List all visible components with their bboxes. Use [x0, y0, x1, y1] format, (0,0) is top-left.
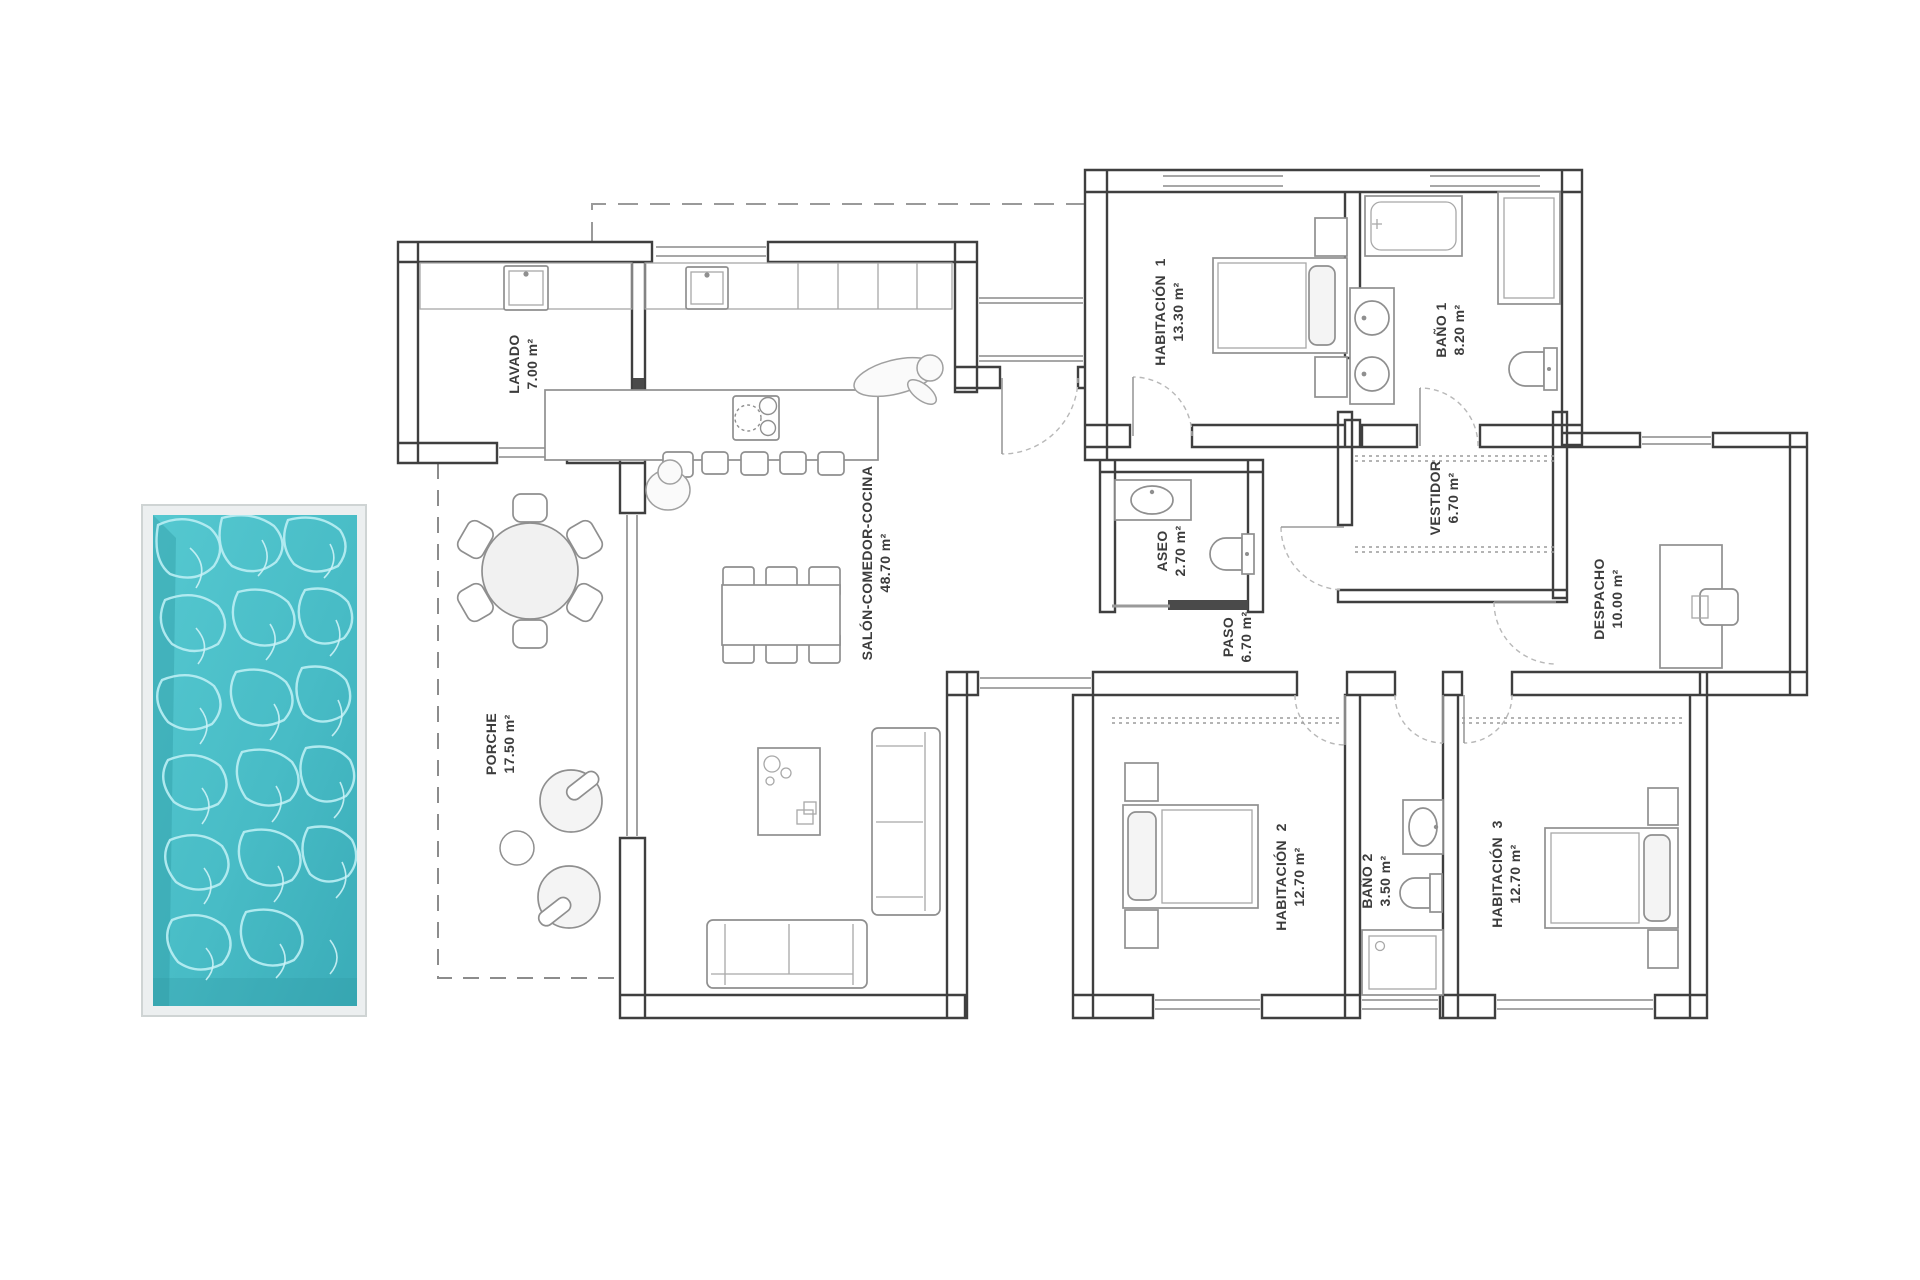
room-name: PASO	[1220, 617, 1236, 657]
room-name: BAÑO 1	[1432, 302, 1449, 357]
sink-bowl-1	[1355, 301, 1389, 335]
bed-3-pillow	[1644, 835, 1670, 921]
bedroom2-furniture	[1123, 763, 1258, 948]
bedroom2-door-arc	[1295, 695, 1345, 745]
bedroom1-furniture	[1213, 218, 1347, 397]
porch-furniture	[455, 494, 605, 929]
kitchen-faucet	[704, 272, 709, 277]
room-name: PORCHE	[483, 713, 499, 775]
bed-1-nightstand-top	[1315, 218, 1347, 256]
room-label-porche: PORCHE17.50 m²	[483, 713, 517, 775]
shower-tray	[1362, 930, 1443, 995]
living-dining-furniture	[707, 567, 940, 988]
kitchen-island	[545, 390, 878, 460]
outdoor-round-table	[482, 523, 578, 619]
entry-door-arc	[1002, 378, 1078, 454]
room-area: 6.70 m²	[1238, 611, 1254, 662]
svg-text:SALÓN-COMEDOR-COCINA48.70 m²: SALÓN-COMEDOR-COCINA48.70 m²	[858, 466, 893, 661]
svg-text:ASEO2.70 m²: ASEO2.70 m²	[1154, 525, 1188, 576]
room-label-despacho: DESPACHO10.00 m²	[1591, 558, 1625, 640]
bathroom2-faucet	[1434, 825, 1438, 829]
svg-text:LAVADO7.00 m²: LAVADO7.00 m²	[506, 334, 540, 393]
pool-shadow-bottom	[153, 978, 357, 1006]
room-label-habitacion-1: HABITACIÓN 113.30 m²	[1151, 258, 1186, 366]
office-door-arc	[1494, 602, 1556, 664]
svg-text:PASO6.70 m²: PASO6.70 m²	[1220, 611, 1254, 662]
room-label-salon-comedor-cocina: SALÓN-COMEDOR-COCINA48.70 m²	[858, 466, 893, 661]
room-area: 6.70 m²	[1445, 472, 1461, 523]
bed-2-nightstand-top	[1125, 763, 1158, 801]
room-label-vestidor: VESTIDOR6.70 m²	[1427, 461, 1461, 536]
bed-1-pillow	[1309, 266, 1335, 345]
svg-text:BAÑO 23.50 m²: BAÑO 23.50 m²	[1358, 853, 1393, 908]
room-area: 10.00 m²	[1609, 569, 1625, 628]
swimming-pool	[142, 505, 366, 1016]
room-label-aseo: ASEO2.70 m²	[1154, 525, 1188, 576]
bed-3-nightstand-top	[1648, 788, 1678, 825]
dressing-room-door-arc	[1281, 527, 1344, 590]
svg-text:DESPACHO10.00 m²: DESPACHO10.00 m²	[1591, 558, 1625, 640]
bathroom2-sink-bowl	[1409, 808, 1437, 846]
bathroom1-door-arc	[1420, 388, 1478, 446]
toilet-1-button	[1547, 367, 1551, 371]
bathroom1-furniture	[1350, 192, 1560, 404]
svg-text:HABITACIÓN 113.30 m²: HABITACIÓN 113.30 m²	[1151, 258, 1186, 366]
room-name: BAÑO 2	[1358, 853, 1375, 908]
bedroom3-furniture	[1545, 788, 1678, 968]
floor-plan-page: LAVADO7.00 m² SALÓN-COMEDOR-COCINA48.70 …	[0, 0, 1920, 1280]
room-name: HABITACIÓN 1	[1151, 258, 1168, 366]
sink-2-faucet	[1362, 372, 1367, 377]
bed-3-nightstand-bottom	[1648, 930, 1678, 968]
bed-1-nightstand-bottom	[1315, 357, 1347, 397]
aseo-toilet-button	[1245, 552, 1249, 556]
lounge-chair-2	[536, 866, 600, 929]
roof-overhang-dashed-line	[592, 204, 1085, 242]
room-label-bano-2: BAÑO 23.50 m²	[1358, 853, 1393, 908]
bathroom2-toilet-tank	[1430, 874, 1442, 912]
bed-2-nightstand-bottom	[1125, 910, 1158, 948]
bathroom1-cabinet	[1498, 192, 1560, 304]
room-area: 48.70 m²	[877, 533, 893, 592]
office-furniture	[1660, 545, 1738, 668]
svg-text:HABITACIÓN 312.70 m²: HABITACIÓN 312.70 m²	[1488, 820, 1523, 928]
room-label-habitacion-3: HABITACIÓN 312.70 m²	[1488, 820, 1523, 928]
outdoor-side-table	[500, 831, 534, 865]
room-area: 12.70 m²	[1291, 847, 1307, 906]
room-area: 12.70 m²	[1507, 844, 1523, 903]
sofa	[707, 728, 940, 988]
bathtub	[1365, 196, 1462, 256]
svg-text:BAÑO 18.20 m²: BAÑO 18.20 m²	[1432, 302, 1467, 357]
room-area: 2.70 m²	[1172, 525, 1188, 576]
kitchen-furniture	[545, 263, 952, 510]
room-name: VESTIDOR	[1427, 461, 1443, 536]
dining-table	[722, 585, 840, 645]
sink-1-faucet	[1362, 316, 1367, 321]
bathroom2-door-arc	[1395, 695, 1443, 743]
aseo-toilet-bowl	[1210, 538, 1242, 570]
svg-text:VESTIDOR6.70 m²: VESTIDOR6.70 m²	[1427, 461, 1461, 536]
room-name: HABITACIÓN 3	[1488, 820, 1505, 928]
kitchen-cabinet-dividers	[798, 263, 917, 309]
room-area: 8.20 m²	[1451, 304, 1467, 355]
svg-text:HABITACIÓN 212.70 m²: HABITACIÓN 212.70 m²	[1272, 823, 1307, 931]
room-label-bano-1: BAÑO 18.20 m²	[1432, 302, 1467, 357]
bedroom3-door-arc	[1464, 695, 1512, 743]
coffee-table	[758, 748, 820, 835]
room-name: LAVADO	[506, 334, 522, 393]
aseo-sliding-door	[1168, 600, 1248, 610]
room-area: 7.00 m²	[524, 338, 540, 389]
svg-text:PORCHE17.50 m²: PORCHE17.50 m²	[483, 713, 517, 775]
room-label-habitacion-2: HABITACIÓN 212.70 m²	[1272, 823, 1307, 931]
room-name: ASEO	[1154, 530, 1170, 571]
room-area: 17.50 m²	[501, 714, 517, 773]
room-area: 13.30 m²	[1170, 282, 1186, 341]
sink-bowl-2	[1355, 357, 1389, 391]
lounge-chair-1	[540, 769, 602, 832]
room-label-paso: PASO6.70 m²	[1220, 611, 1254, 662]
room-area: 3.50 m²	[1377, 855, 1393, 906]
aseo-faucet	[1150, 490, 1154, 494]
room-name: DESPACHO	[1591, 558, 1607, 640]
cooktop	[733, 396, 779, 440]
bed-2-pillow	[1128, 812, 1156, 900]
room-label-lavado: LAVADO7.00 m²	[506, 334, 540, 393]
toilet-1-bowl	[1509, 352, 1544, 386]
bedroom1-door-arc	[1133, 377, 1192, 436]
floor-plan-svg: LAVADO7.00 m² SALÓN-COMEDOR-COCINA48.70 …	[0, 0, 1920, 1280]
bathroom2-toilet-bowl	[1400, 878, 1430, 908]
office-chair	[1700, 589, 1738, 625]
room-name: SALÓN-COMEDOR-COCINA	[858, 466, 875, 661]
room-name: HABITACIÓN 2	[1272, 823, 1289, 931]
laundry-room-furniture	[420, 263, 632, 310]
washing-machine-knob	[523, 271, 528, 276]
